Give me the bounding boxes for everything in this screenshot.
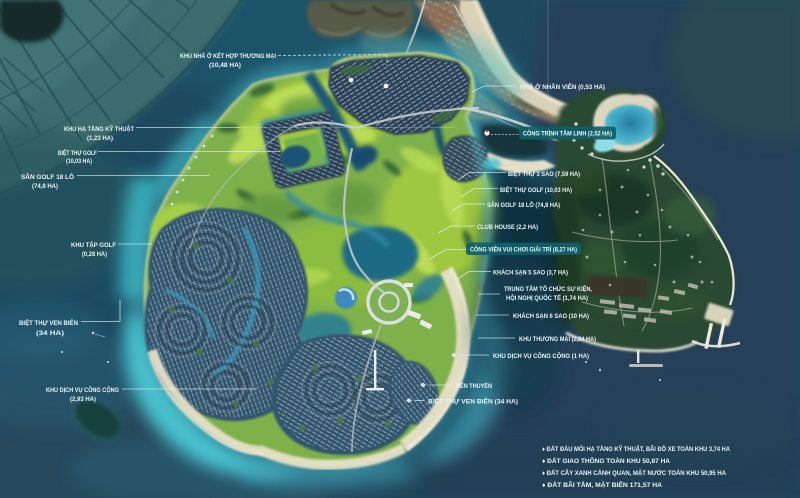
svg-text:SÂN GOLF 18 LỖ: SÂN GOLF 18 LỖ — [21, 172, 74, 181]
svg-text:CÔNG VIÊN VUI CHƠI GIẢI TRÍ (8: CÔNG VIÊN VUI CHƠI GIẢI TRÍ (8,27 HA) — [470, 245, 577, 254]
svg-text:KHÁCH SẠN 5 SAO (3,7 HA): KHÁCH SẠN 5 SAO (3,7 HA) — [493, 268, 568, 277]
svg-text:(10,03 HA): (10,03 HA) — [66, 158, 92, 165]
svg-text:(2,93 HA): (2,93 HA) — [70, 396, 96, 403]
svg-text:BIỆT THỰ VEN BIỂN (34 HA): BIỆT THỰ VEN BIỂN (34 HA) — [428, 397, 518, 406]
svg-text:♦ ĐẤT ĐẦU MỐI HẠ TẦNG KỸ THUẬ: ♦ ĐẤT ĐẦU MỐI HẠ TẦNG KỸ THUẬT, BÃI ĐỖ X… — [542, 446, 730, 453]
svg-text:SÂN GOLF 18 LỖ (74,8 HA): SÂN GOLF 18 LỖ (74,8 HA) — [487, 200, 560, 209]
svg-text:♦ ĐẤT BÃI TẮM, MẶT BIỂN 171,: ♦ ĐẤT BÃI TẮM, MẶT BIỂN 171,57 HA — [542, 481, 663, 489]
svg-text:CLUB HOUSE (2,2 HA): CLUB HOUSE (2,2 HA) — [477, 224, 538, 231]
svg-text:CÔNG TRÌNH TÂM LINH (2,52 HA): CÔNG TRÌNH TÂM LINH (2,52 HA) — [523, 129, 612, 138]
svg-text:(1,23 HA): (1,23 HA) — [87, 135, 113, 142]
svg-text:KHU DỊCH VỤ CÔNG CỘNG: KHU DỊCH VỤ CÔNG CỘNG — [46, 385, 119, 394]
svg-text:TRUNG TÂM TỔ CHỨC SỰ KIỆN,: TRUNG TÂM TỔ CHỨC SỰ KIỆN, — [504, 284, 592, 293]
svg-text:♦ ĐẤT GIAO THÔNG TOÀN KHU 50,: ♦ ĐẤT GIAO THÔNG TOÀN KHU 50,87 HA — [542, 457, 671, 465]
svg-text:(0,28 HA): (0,28 HA) — [82, 251, 107, 258]
svg-text:KHU DỊCH VỤ CÔNG CỘNG (1 HA): KHU DỊCH VỤ CÔNG CỘNG (1 HA) — [493, 351, 589, 360]
svg-text:(34 HA): (34 HA) — [36, 330, 64, 337]
svg-text:KHÁCH SẠN 6 SAO (10 HA): KHÁCH SẠN 6 SAO (10 HA) — [513, 311, 589, 320]
svg-text:BIỆT THỰ 3 SAO (7,59 HA): BIỆT THỰ 3 SAO (7,59 HA) — [508, 169, 580, 178]
svg-text:♦ ĐẤT CÂY XANH CẢNH QUAN, MẶT: ♦ ĐẤT CÂY XANH CẢNH QUAN, MẶT NƯỚC TOÀN … — [542, 469, 727, 477]
svg-text:BIỆT THỰ VEN BIỂN: BIỆT THỰ VEN BIỂN — [19, 318, 78, 327]
svg-text:(74,8 HA): (74,8 HA) — [32, 183, 58, 190]
svg-text:KHU THƯƠNG MẠI (2,84 HA): KHU THƯƠNG MẠI (2,84 HA) — [519, 336, 596, 343]
svg-text:(10,48 HA): (10,48 HA) — [209, 62, 241, 69]
svg-text:KHU TẬP GOLF: KHU TẬP GOLF — [71, 240, 116, 249]
svg-text:BIỆT THỰ GOLF (10,03 HA): BIỆT THỰ GOLF (10,03 HA) — [500, 185, 572, 194]
svg-text:NHÀ Ở NHÂN VIÊN (0,53 HA): NHÀ Ở NHÂN VIÊN (0,53 HA) — [520, 82, 605, 91]
svg-text:BIỆT THỰ GOLF: BIỆT THỰ GOLF — [58, 148, 97, 157]
